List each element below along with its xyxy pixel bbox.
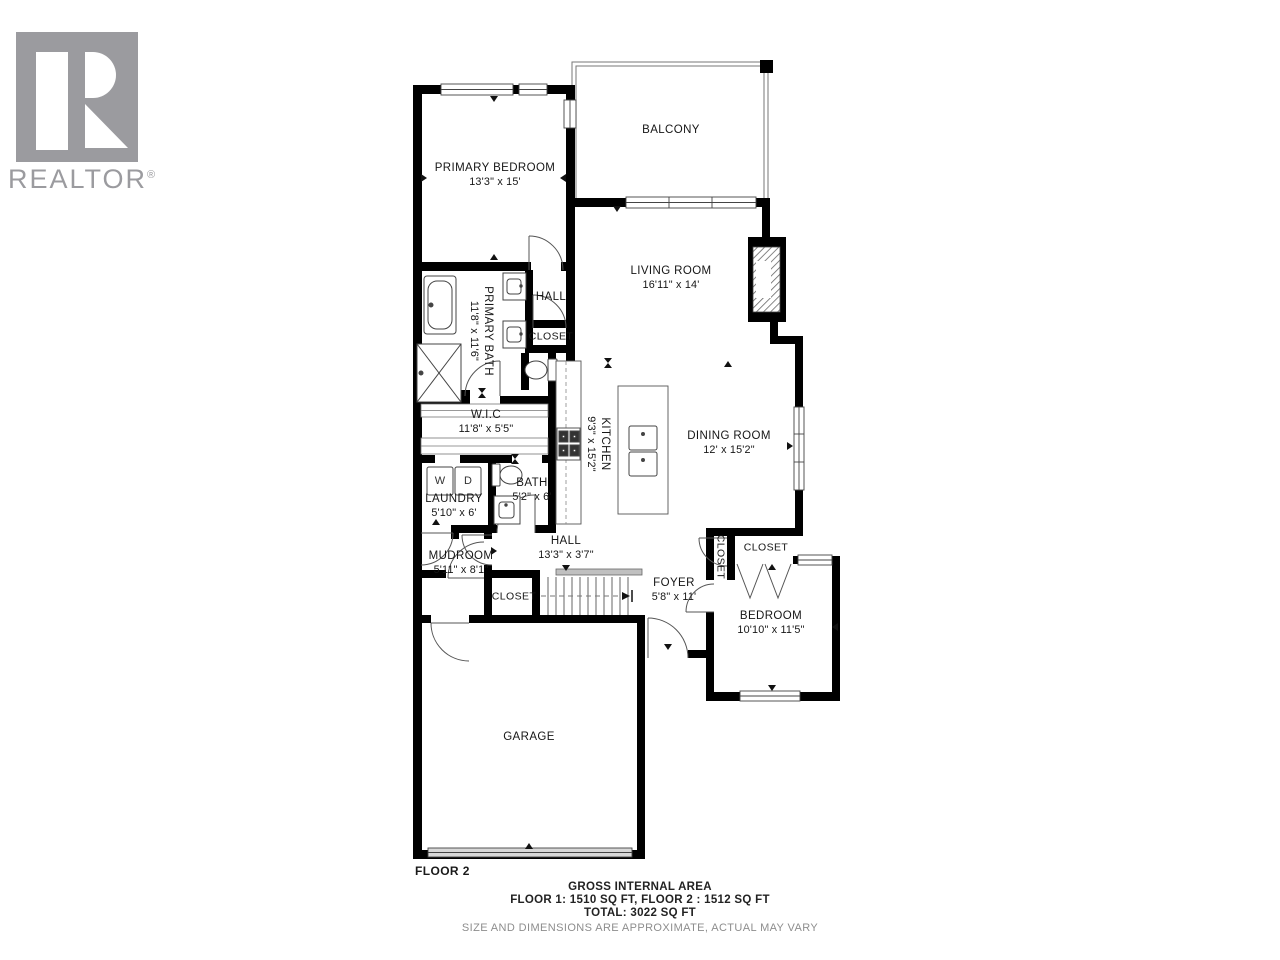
- fireplace-icon: [748, 237, 786, 322]
- garage-door: [428, 848, 632, 857]
- sliding-door-window: [626, 197, 756, 208]
- room-label-living-room: LIVING ROOM 16'11" x 14': [630, 264, 711, 292]
- door: [431, 623, 469, 661]
- room-label-closet-bedroom: CLOSET: [744, 542, 788, 555]
- window: [740, 691, 800, 701]
- door: [529, 236, 563, 270]
- room-dims: 5'10" x 6': [431, 507, 476, 519]
- room-label-mudroom: MUDROOM 5'11" x 8'1": [429, 549, 494, 577]
- vanity-sink-icon: [503, 273, 526, 300]
- shower-icon: [417, 344, 461, 402]
- room-label-garage: GARAGE: [503, 730, 555, 744]
- stair-direction-arrow: [622, 592, 630, 600]
- bifold-closet-doors: [737, 564, 791, 598]
- stair-handrail: [556, 569, 642, 575]
- room-label-closet-foyer: CLOSET: [714, 535, 727, 579]
- vanity-sink-icon: [503, 321, 526, 348]
- room-label-kitchen: KITCHEN 9'3" x 15'2": [584, 416, 612, 472]
- footer-areas: FLOOR 1: 1510 SQ FT, FLOOR 2 : 1512 SQ F…: [0, 894, 1280, 906]
- room-dims: 13'3" x 15': [469, 176, 521, 188]
- bathtub-icon: [424, 276, 456, 334]
- room-label-closet-upper: CLOSET: [529, 331, 573, 344]
- footer-total: TOTAL: 3022 SQ FT: [0, 907, 1280, 919]
- window: [519, 84, 547, 95]
- window: [794, 407, 804, 490]
- stairs: [541, 569, 642, 615]
- room-dims: 11'8" x 11'6": [468, 301, 480, 361]
- room-label-foyer: FOYER 5'8" x 11': [652, 576, 697, 604]
- room-label-primary-bath: PRIMARY BATH 11'8" x 11'6": [467, 286, 495, 376]
- kitchen-island: [618, 386, 668, 514]
- room-label-closet-mudroom: CLOSET: [492, 591, 536, 604]
- room-label-hall-upper: HALL: [536, 290, 566, 304]
- toilet-icon: [525, 359, 557, 381]
- room-dims: 9'3" x 15'2": [585, 416, 597, 472]
- footer-title: GROSS INTERNAL AREA: [0, 881, 1280, 893]
- cooktop-icon: [557, 428, 580, 460]
- window: [798, 555, 832, 565]
- room-label-bedroom: BEDROOM 10'10" x 11'5": [737, 609, 804, 637]
- floor-plan-page: REALTOR®: [0, 0, 1280, 960]
- room-label-laundry: LAUNDRY 5'10" x 6': [425, 492, 483, 520]
- room-label-primary-bedroom: PRIMARY BEDROOM 13'3" x 15': [435, 161, 556, 189]
- room-dims: 5'8" x 11': [652, 591, 697, 603]
- room-label-dining-room: DINING ROOM 12' x 15'2": [687, 429, 771, 457]
- door: [648, 618, 688, 658]
- floor-number-label: FLOOR 2: [415, 864, 470, 878]
- room-label-hall-lower: HALL 13'3" x 3'7": [538, 534, 594, 562]
- footer-disclaimer: SIZE AND DIMENSIONS ARE APPROXIMATE, ACT…: [0, 922, 1280, 934]
- room-dims: 5'2" x 6': [512, 491, 551, 503]
- room-dims: 11'8" x 5'5": [459, 423, 514, 435]
- room-label-bath: BATH 5'2" x 6': [512, 476, 551, 504]
- dryer-label: D: [464, 475, 472, 487]
- room-dims: 5'11" x 8'1": [434, 564, 489, 576]
- room-dims: 13'3" x 3'7": [538, 549, 594, 561]
- room-dims: 12' x 15'2": [703, 444, 755, 456]
- window: [564, 100, 576, 128]
- washer-label: W: [435, 475, 445, 487]
- room-label-wic: W.I.C 11'8" x 5'5": [459, 408, 514, 436]
- room-dims: 10'10" x 11'5": [737, 624, 804, 636]
- floor-plan-drawing: [0, 0, 1280, 960]
- room-dims: 16'11" x 14': [643, 279, 700, 291]
- room-label-balcony: BALCONY: [642, 123, 700, 137]
- window: [441, 84, 513, 95]
